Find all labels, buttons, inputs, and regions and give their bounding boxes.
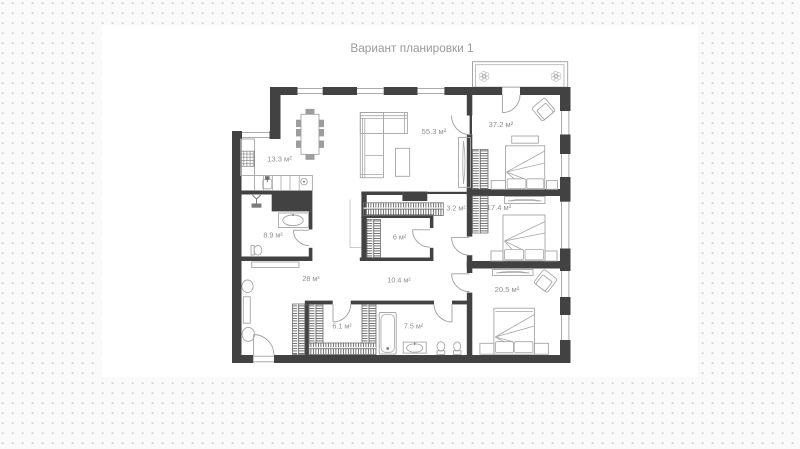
svg-text:28 м²: 28 м² [302,274,320,283]
svg-text:6 м²: 6 м² [393,233,407,242]
svg-text:20.5 м²: 20.5 м² [495,285,520,294]
svg-text:Вариант планировки 1: Вариант планировки 1 [350,41,473,55]
svg-text:10.4 м²: 10.4 м² [387,276,411,285]
svg-text:17.4 м²: 17.4 м² [487,203,512,212]
svg-text:3.2 м²: 3.2 м² [446,204,466,213]
svg-text:6.1 м²: 6.1 м² [332,322,352,331]
svg-text:7.5 м²: 7.5 м² [404,322,424,331]
svg-text:55.3 м²: 55.3 м² [422,127,447,136]
svg-text:37.2 м²: 37.2 м² [489,120,514,129]
svg-text:13.3 м²: 13.3 м² [267,155,292,164]
svg-text:8.9 м²: 8.9 м² [263,231,283,240]
